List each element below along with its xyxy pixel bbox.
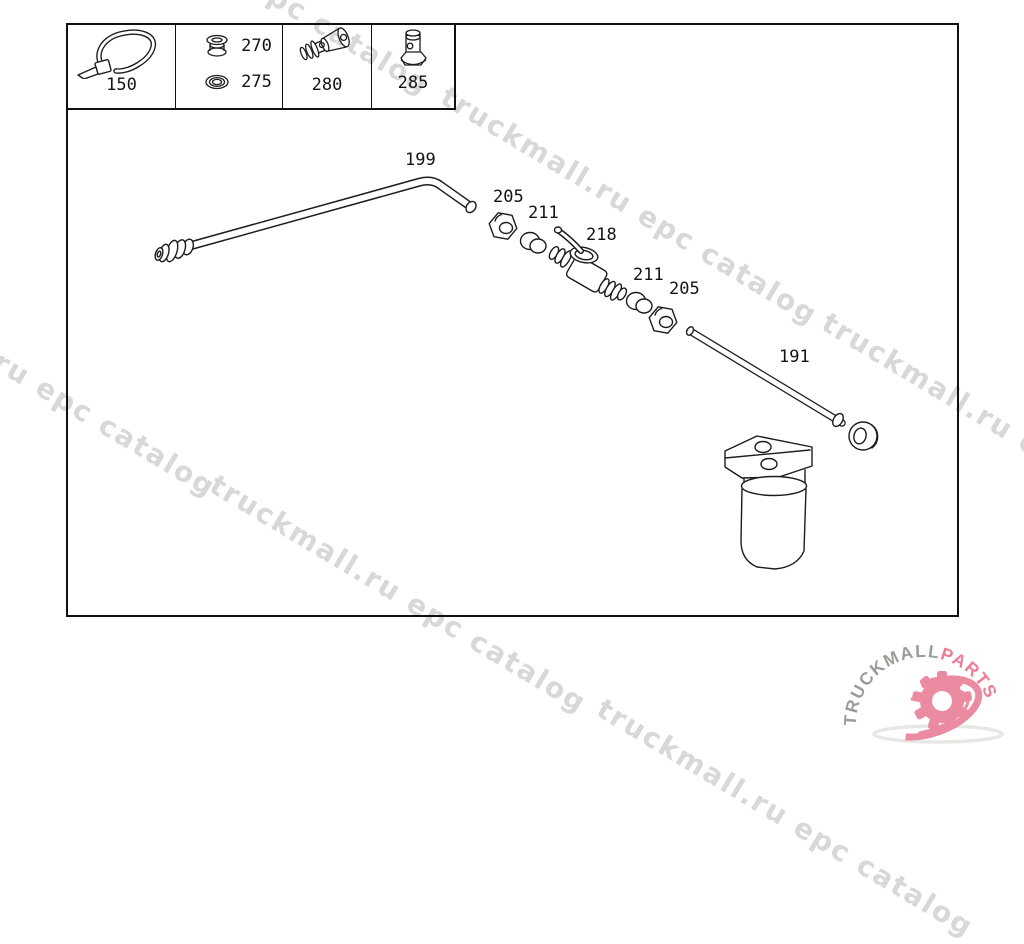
legend-part-number: 285 [398,75,429,92]
callout-211: 211 [528,205,559,222]
legend-cell-280: 280 [283,25,372,108]
legend-part-number: 275 [241,74,272,91]
fuel-pipe-191 [685,326,878,450]
legend-part-number: 280 [312,77,343,94]
callout-211: 211 [633,267,664,284]
truckmall-parts-logo: TRUCKMALLPARTS [843,640,1024,750]
overflow-valve-icon [393,25,433,73]
legend-cell-285: 285 [372,25,454,108]
fuel-filter [725,436,812,569]
fuel-pipe-199 [186,181,478,247]
grommet-icon [202,33,232,59]
callout-218: 218 [586,227,617,244]
parts-diagram [0,0,1024,750]
callout-199: 199 [405,152,436,169]
legend-part-number: 150 [106,77,137,94]
legend-box: 150 270 275 [66,23,456,110]
sleeve-211 [627,293,653,314]
hose-connector-icon [292,25,362,75]
legend-cell-270-275: 270 275 [176,25,283,108]
union-nut-205 [489,213,517,239]
union-nut-205 [649,307,677,333]
pipe-199-fitting [154,238,195,263]
callout-205: 205 [493,189,524,206]
legend-part-number: 270 [241,38,272,55]
sleeve-211 [521,233,547,254]
cable-tie-icon [76,25,168,79]
callout-191: 191 [779,349,810,366]
washer-icon [202,71,232,93]
callout-205: 205 [669,281,700,298]
legend-cell-150: 150 [68,25,176,108]
